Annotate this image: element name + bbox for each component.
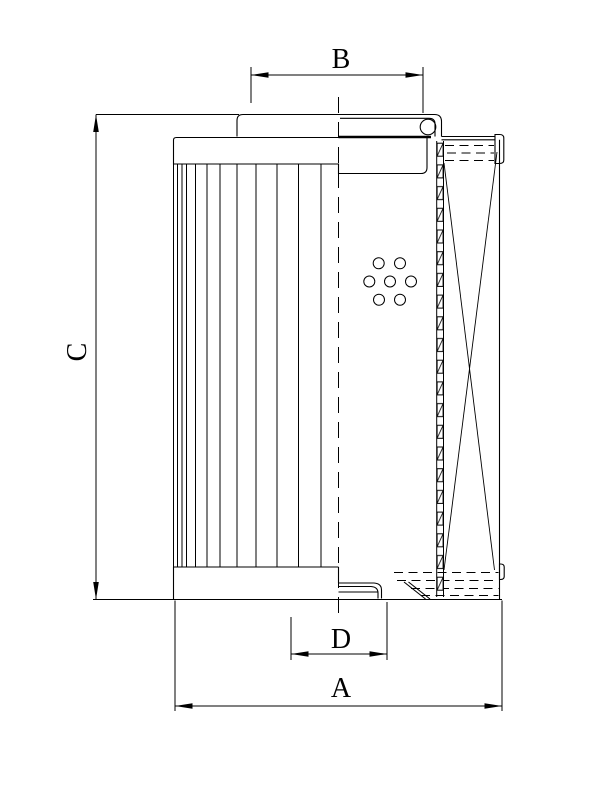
drawing-background (0, 0, 612, 792)
dimension-label-b: B (332, 44, 351, 75)
shell-bottom-lip (500, 564, 505, 580)
dimension-label-c: C (62, 343, 93, 362)
filter-element-drawing: C B (0, 0, 612, 792)
dimension-label-a: A (331, 673, 352, 704)
technical-drawing-page: C B (0, 0, 612, 792)
dimension-label-d: D (331, 624, 351, 655)
inner-tube-hatch (437, 141, 444, 597)
tube-hatch-pattern (437, 142, 444, 597)
